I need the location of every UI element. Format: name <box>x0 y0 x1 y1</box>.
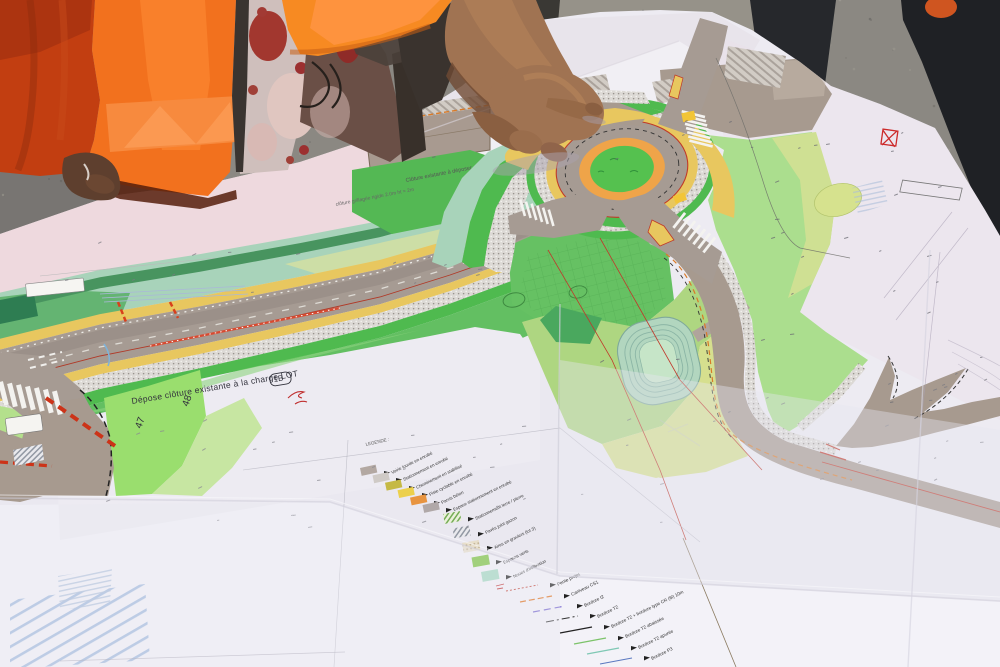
svg-text:1B: 1B <box>273 373 284 383</box>
